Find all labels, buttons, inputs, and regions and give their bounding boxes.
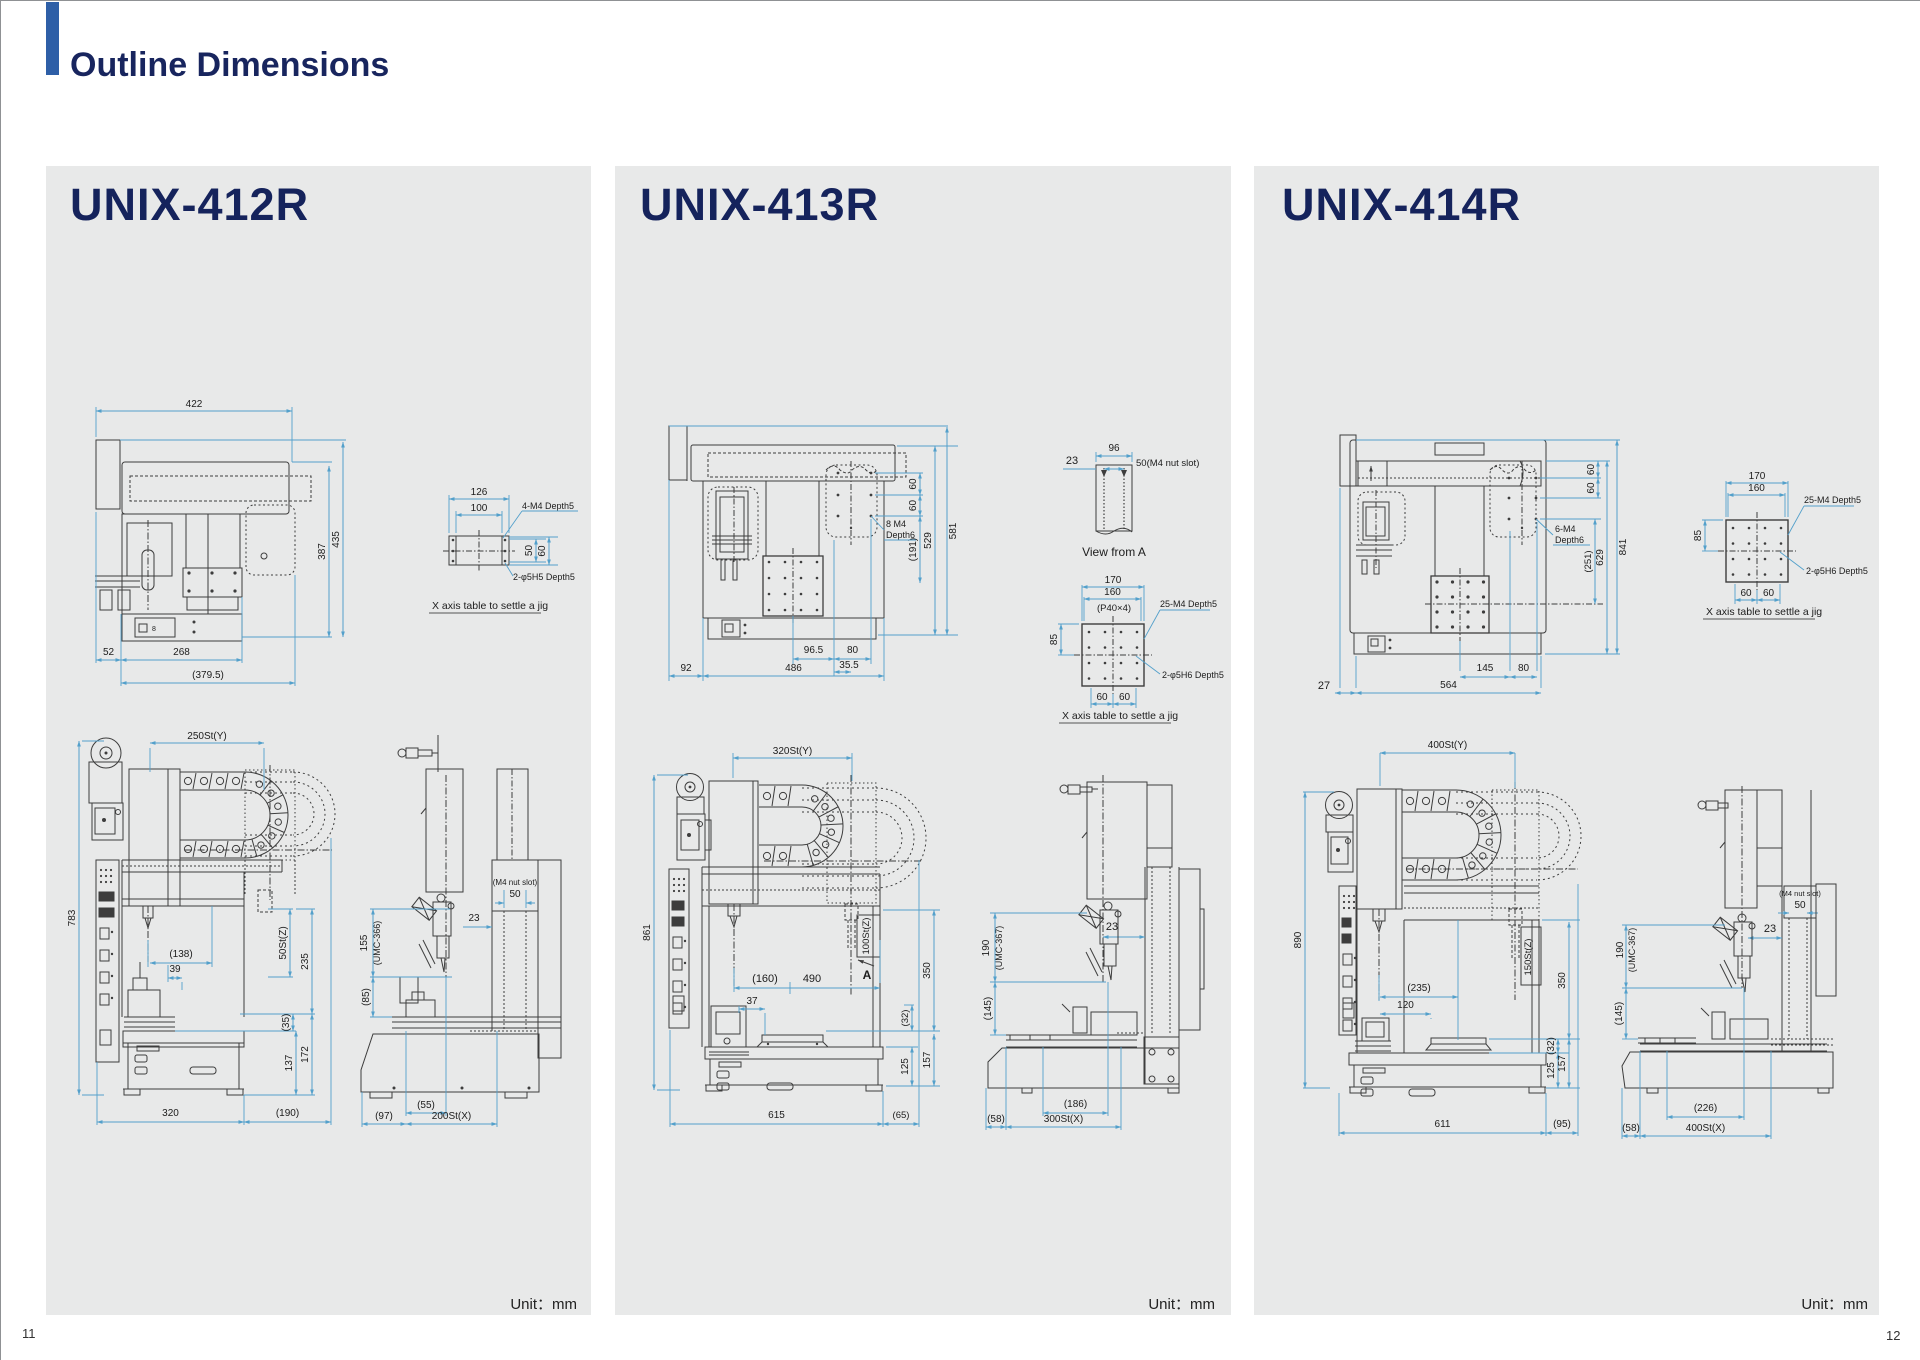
- svg-text:268: 268: [173, 647, 190, 658]
- svg-text:X axis table to settle a jig: X axis table to settle a jig: [1062, 710, 1178, 722]
- svg-text:172: 172: [300, 1046, 311, 1063]
- svg-text:50(M4 nut slot): 50(M4 nut slot): [1136, 458, 1199, 469]
- svg-text:(58): (58): [987, 1114, 1005, 1125]
- svg-text:(251): (251): [1583, 550, 1594, 572]
- svg-text:387: 387: [317, 543, 328, 560]
- svg-text:80: 80: [1518, 663, 1530, 674]
- svg-text:(UMC-367): (UMC-367): [1627, 928, 1637, 973]
- svg-text:435: 435: [331, 531, 342, 548]
- svg-text:52: 52: [103, 647, 115, 658]
- svg-text:80: 80: [847, 645, 859, 656]
- svg-text:157: 157: [1557, 1055, 1568, 1072]
- svg-text:611: 611: [1435, 1119, 1451, 1130]
- svg-text:50St(Z): 50St(Z): [278, 926, 289, 959]
- svg-text:783: 783: [67, 909, 78, 926]
- svg-text:View from A: View from A: [1082, 545, 1146, 559]
- svg-text:50: 50: [1794, 900, 1806, 911]
- svg-text:861: 861: [642, 924, 653, 941]
- svg-text:(138): (138): [169, 949, 192, 960]
- svg-text:23: 23: [1764, 923, 1776, 935]
- svg-text:125: 125: [900, 1058, 911, 1075]
- svg-text:841: 841: [1618, 538, 1629, 555]
- svg-text:23: 23: [468, 913, 480, 924]
- svg-text:(65): (65): [893, 1110, 910, 1121]
- svg-text:170: 170: [1749, 471, 1766, 482]
- svg-text:(UMC-367): (UMC-367): [994, 926, 1004, 971]
- svg-text:(55): (55): [417, 1100, 435, 1111]
- svg-text:170: 170: [1105, 575, 1122, 586]
- svg-text:125: 125: [1546, 1062, 1557, 1079]
- svg-text:250St(Y): 250St(Y): [187, 731, 226, 742]
- svg-text:400St(Y): 400St(Y): [1428, 740, 1467, 751]
- svg-text:X axis table to settle a jig: X axis table to settle a jig: [1706, 606, 1822, 618]
- svg-text:190: 190: [981, 939, 992, 956]
- svg-text:96.5: 96.5: [804, 645, 824, 656]
- svg-text:235: 235: [300, 953, 311, 970]
- svg-text:(145): (145): [983, 997, 994, 1020]
- svg-text:137: 137: [284, 1054, 295, 1071]
- svg-text:615: 615: [768, 1110, 785, 1121]
- svg-text:(M4 nut slot): (M4 nut slot): [1779, 889, 1821, 898]
- svg-text:(58): (58): [1622, 1123, 1640, 1134]
- svg-text:85: 85: [1049, 634, 1060, 646]
- svg-text:8: 8: [152, 626, 156, 633]
- svg-text:60: 60: [908, 500, 919, 512]
- svg-text:96: 96: [1108, 443, 1120, 454]
- svg-text:100: 100: [471, 503, 488, 514]
- svg-text:60: 60: [1119, 692, 1131, 703]
- svg-text:23: 23: [1066, 455, 1078, 467]
- svg-text:490: 490: [803, 973, 821, 985]
- svg-text:320St(Y): 320St(Y): [773, 746, 812, 757]
- svg-text:350: 350: [1557, 972, 1568, 989]
- svg-text:23: 23: [1106, 921, 1118, 933]
- svg-text:4-M4 Depth5: 4-M4 Depth5: [522, 501, 574, 511]
- svg-text:A: A: [863, 968, 872, 982]
- svg-text:890: 890: [1293, 931, 1304, 948]
- svg-text:160: 160: [1748, 483, 1765, 494]
- svg-text:50: 50: [524, 545, 535, 557]
- svg-text:581: 581: [948, 522, 959, 539]
- svg-text:60: 60: [908, 478, 919, 490]
- svg-text:X axis table to settle a jig: X axis table to settle a jig: [432, 600, 548, 612]
- svg-text:(UMC-366): (UMC-366): [372, 921, 382, 966]
- svg-text:(P40×4): (P40×4): [1097, 603, 1131, 614]
- svg-text:564: 564: [1440, 680, 1457, 691]
- svg-text:(85): (85): [361, 988, 372, 1006]
- svg-text:60: 60: [537, 545, 548, 557]
- svg-text:60: 60: [1763, 588, 1775, 599]
- svg-text:(35): (35): [281, 1014, 292, 1032]
- svg-text:126: 126: [471, 487, 488, 498]
- svg-text:25-M4 Depth5: 25-M4 Depth5: [1804, 495, 1861, 505]
- svg-text:(160): (160): [752, 973, 778, 985]
- svg-text:300St(X): 300St(X): [1044, 1114, 1083, 1125]
- svg-text:25-M4 Depth5: 25-M4 Depth5: [1160, 599, 1217, 609]
- svg-text:8 M4: 8 M4: [886, 519, 906, 529]
- svg-text:60: 60: [1740, 588, 1752, 599]
- svg-text:37: 37: [746, 996, 758, 1007]
- svg-text:400St(X): 400St(X): [1686, 1123, 1725, 1134]
- svg-text:350: 350: [922, 962, 933, 979]
- svg-text:(M4 nut slot): (M4 nut slot): [493, 878, 538, 887]
- svg-text:50: 50: [509, 889, 521, 900]
- svg-text:6-M4: 6-M4: [1555, 524, 1576, 534]
- svg-text:(145): (145): [1614, 1002, 1625, 1025]
- svg-text:200St(X): 200St(X): [432, 1111, 471, 1122]
- svg-text:Depth6: Depth6: [1555, 535, 1584, 545]
- svg-text:60: 60: [1586, 482, 1597, 494]
- svg-text:(32): (32): [1546, 1037, 1557, 1055]
- svg-text:2-φ5H6 Depth5: 2-φ5H6 Depth5: [1162, 670, 1224, 680]
- svg-text:60: 60: [1096, 692, 1108, 703]
- svg-text:2-φ5H5 Depth5: 2-φ5H5 Depth5: [513, 572, 575, 582]
- svg-text:(379.5): (379.5): [192, 670, 224, 681]
- svg-text:157: 157: [922, 1051, 933, 1068]
- svg-text:120: 120: [1397, 1000, 1414, 1011]
- svg-text:(226): (226): [1694, 1103, 1717, 1114]
- svg-text:2-φ5H6 Depth5: 2-φ5H6 Depth5: [1806, 566, 1868, 576]
- svg-text:(190): (190): [276, 1108, 299, 1119]
- svg-text:27: 27: [1318, 680, 1330, 692]
- svg-text:(32): (32): [900, 1010, 911, 1027]
- svg-text:486: 486: [785, 663, 802, 674]
- svg-text:85: 85: [1693, 530, 1704, 542]
- svg-text:(235): (235): [1407, 983, 1430, 994]
- svg-text:190: 190: [1615, 941, 1626, 958]
- svg-text:145: 145: [1477, 663, 1494, 674]
- svg-text:422: 422: [186, 399, 203, 410]
- svg-text:92: 92: [680, 663, 692, 674]
- svg-text:529: 529: [923, 532, 934, 549]
- svg-text:320: 320: [162, 1108, 179, 1119]
- svg-text:(191): (191): [908, 538, 919, 561]
- svg-text:(95): (95): [1553, 1119, 1571, 1130]
- svg-text:160: 160: [1104, 587, 1121, 598]
- svg-text:155: 155: [359, 934, 370, 951]
- svg-text:(97): (97): [375, 1111, 393, 1122]
- svg-text:60: 60: [1586, 464, 1597, 476]
- svg-text:(186): (186): [1064, 1099, 1087, 1110]
- svg-text:39: 39: [169, 964, 181, 975]
- svg-text:35.5: 35.5: [839, 660, 859, 671]
- svg-text:100St(Z): 100St(Z): [861, 918, 872, 955]
- svg-text:629: 629: [1595, 549, 1606, 566]
- svg-text:Depth6: Depth6: [886, 530, 915, 540]
